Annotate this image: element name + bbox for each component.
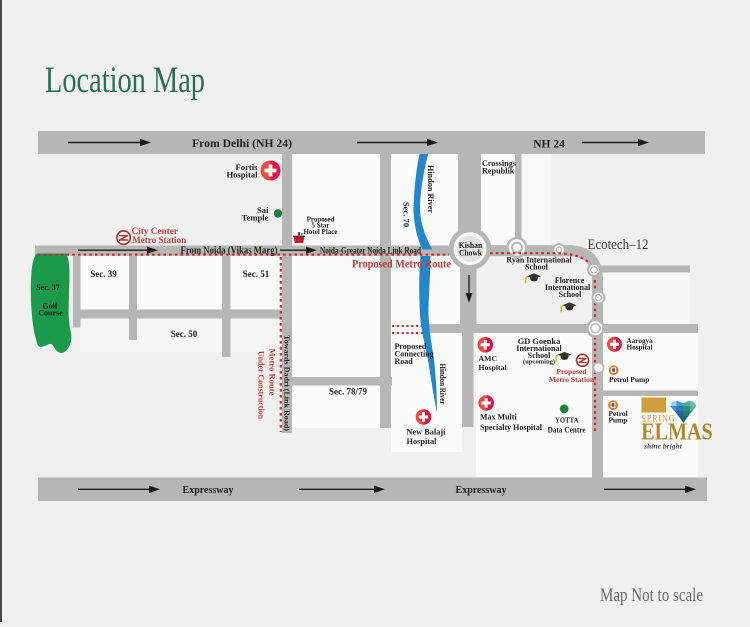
svg-text:NH 24: NH 24 — [533, 139, 565, 151]
svg-text:Hospital: Hospital — [627, 343, 653, 351]
svg-text:Sec. 39: Sec. 39 — [90, 269, 117, 279]
svg-text:Towards Dadri (Link Road): Towards Dadri (Link Road) — [282, 335, 291, 431]
svg-text:Road: Road — [395, 357, 414, 366]
svg-text:Petrol Pump: Petrol Pump — [609, 375, 649, 384]
svg-text:Data Centre: Data Centre — [548, 425, 586, 434]
svg-text:Hospital: Hospital — [226, 169, 258, 179]
svg-text:From Delhi (NH 24): From Delhi (NH 24) — [192, 138, 292, 150]
svg-text:Metro Station: Metro Station — [132, 235, 187, 246]
svg-text:Ecotech–12: Ecotech–12 — [588, 237, 649, 253]
svg-text:Location Map: Location Map — [45, 60, 205, 101]
svg-text:Noida-Greater Noida Link Road: Noida-Greater Noida Link Road — [320, 246, 422, 256]
svg-text:Pump: Pump — [609, 415, 628, 424]
svg-text:From Noida (Vikas Marg): From Noida (Vikas Marg) — [181, 246, 278, 257]
svg-text:Sec. 78/79: Sec. 78/79 — [329, 387, 367, 397]
svg-text:School: School — [525, 263, 548, 272]
svg-text:AMC: AMC — [479, 354, 498, 363]
svg-text:Course: Course — [38, 308, 63, 317]
svg-text:Expressway: Expressway — [183, 485, 234, 496]
svg-text:Under Construction: Under Construction — [256, 351, 266, 419]
svg-text:Sec. 37: Sec. 37 — [36, 283, 60, 292]
svg-text:Proposed Metro Route: Proposed Metro Route — [352, 256, 452, 270]
svg-text:Republik: Republik — [482, 167, 515, 176]
svg-text:New Balaji: New Balaji — [407, 428, 447, 437]
svg-text:School: School — [559, 290, 582, 299]
svg-text:(upcoming): (upcoming) — [523, 358, 555, 365]
svg-text:Metro Station: Metro Station — [549, 375, 595, 384]
svg-text:Specialty Hospital: Specialty Hospital — [480, 423, 543, 432]
svg-text:Chowk: Chowk — [459, 248, 482, 258]
svg-text:Max Multi: Max Multi — [480, 413, 517, 422]
svg-text:Hindon River: Hindon River — [438, 364, 447, 405]
svg-text:Metro Route: Metro Route — [267, 349, 277, 396]
svg-text:YOTTA: YOTTA — [555, 416, 579, 425]
svg-text:Sec. 50: Sec. 50 — [171, 329, 198, 339]
svg-text:Hindon River: Hindon River — [426, 165, 436, 213]
svg-text:Sec. 51: Sec. 51 — [243, 269, 270, 279]
svg-text:Map Not to scale: Map Not to scale — [600, 585, 703, 606]
svg-text:shine bright: shine bright — [643, 442, 683, 451]
svg-text:Hotel Place: Hotel Place — [303, 228, 337, 236]
svg-text:Hospital: Hospital — [407, 437, 438, 446]
svg-text:Temple: Temple — [242, 213, 269, 223]
svg-text:Sec. 70: Sec. 70 — [402, 202, 412, 227]
svg-text:Expressway: Expressway — [456, 485, 507, 496]
svg-text:Hospital: Hospital — [479, 363, 508, 372]
